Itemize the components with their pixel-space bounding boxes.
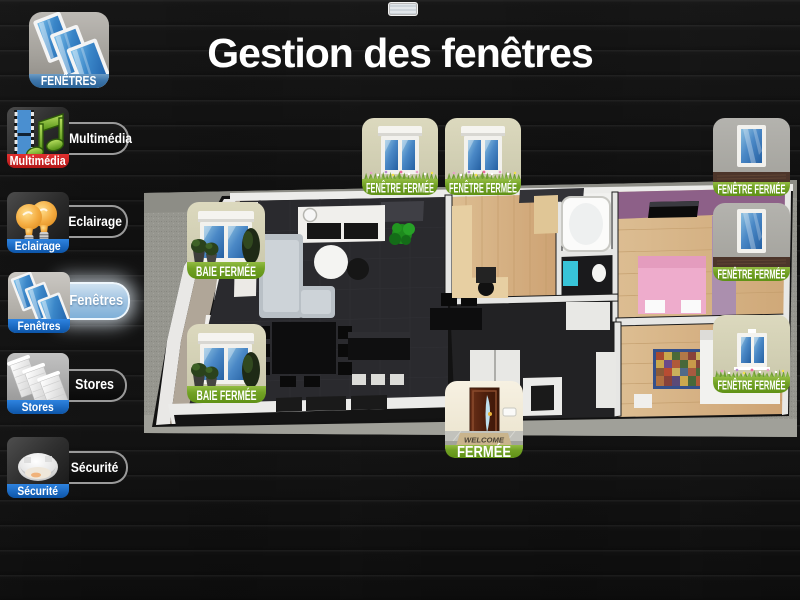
svg-text:BAIE FERMÉE: BAIE FERMÉE [196, 263, 256, 279]
svg-text:FERMÉE: FERMÉE [457, 444, 511, 461]
svg-text:FENÊTRE FERMÉE: FENÊTRE FERMÉE [718, 182, 786, 197]
svg-text:FENÊTRE FERMÉE: FENÊTRE FERMÉE [449, 179, 517, 196]
svg-text:FENÊTRE FERMÉE: FENÊTRE FERMÉE [718, 378, 786, 393]
svg-text:FENÊTRE FERMÉE: FENÊTRE FERMÉE [718, 267, 786, 282]
svg-text:BAIE FERMÉE: BAIE FERMÉE [197, 387, 257, 403]
svg-text:FENÊTRE FERMÉE: FENÊTRE FERMÉE [366, 179, 434, 196]
